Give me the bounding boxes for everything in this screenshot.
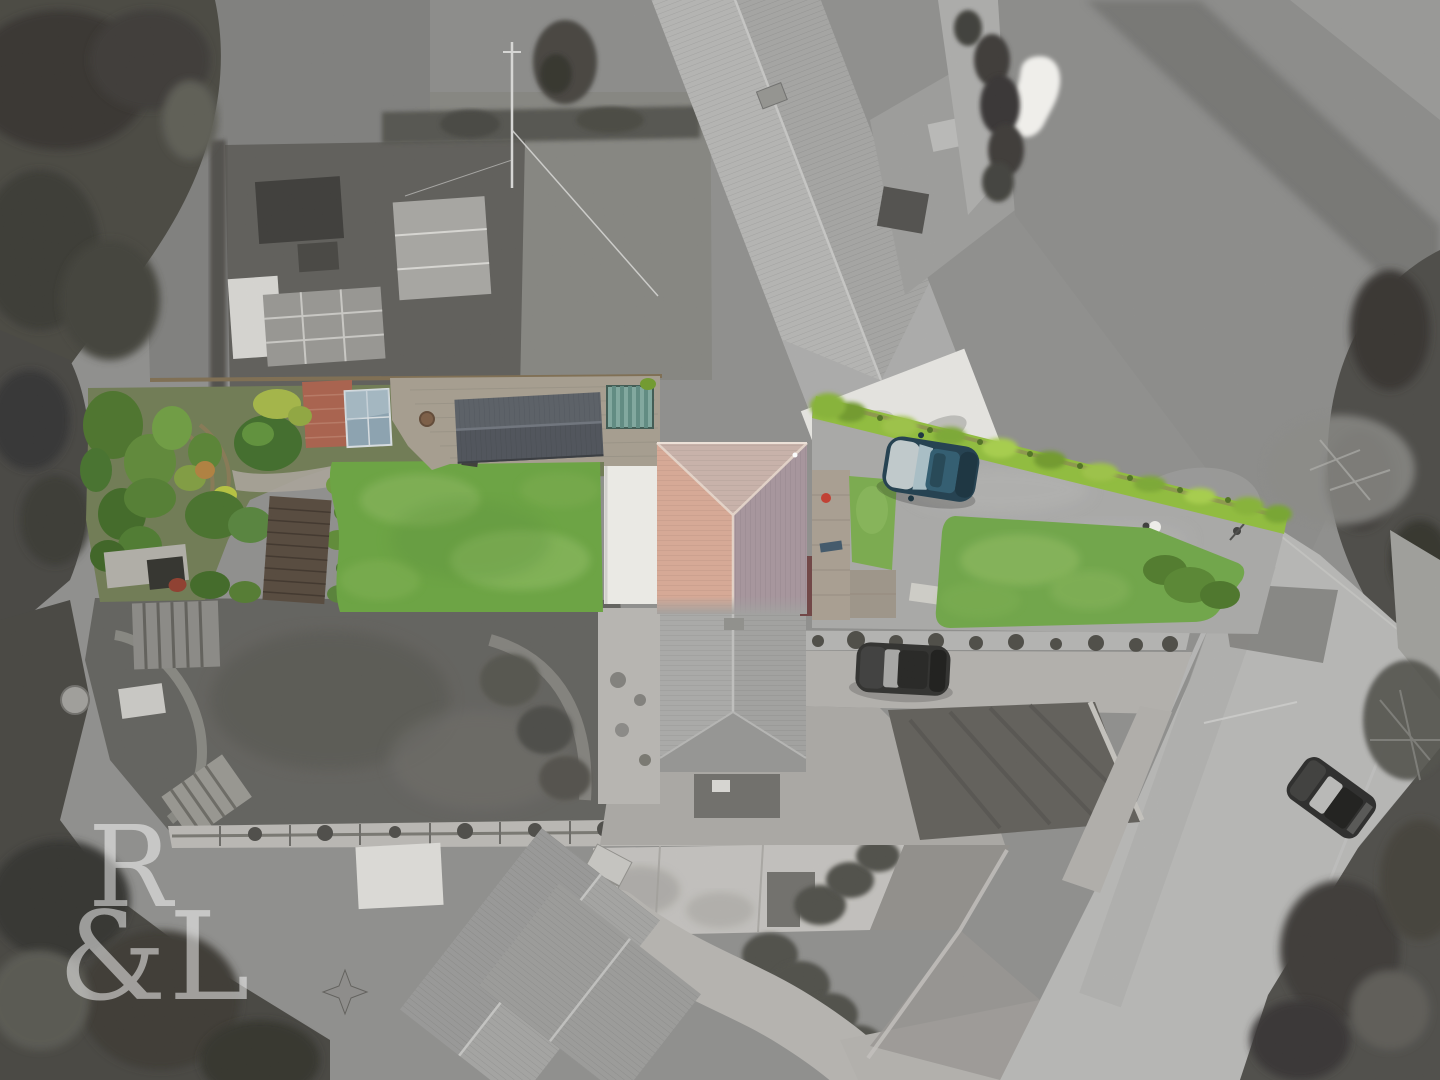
film-grain	[0, 0, 1440, 1080]
aerial-photo: R &L	[0, 0, 1440, 1080]
aerial-photo-canvas	[0, 0, 1440, 1080]
